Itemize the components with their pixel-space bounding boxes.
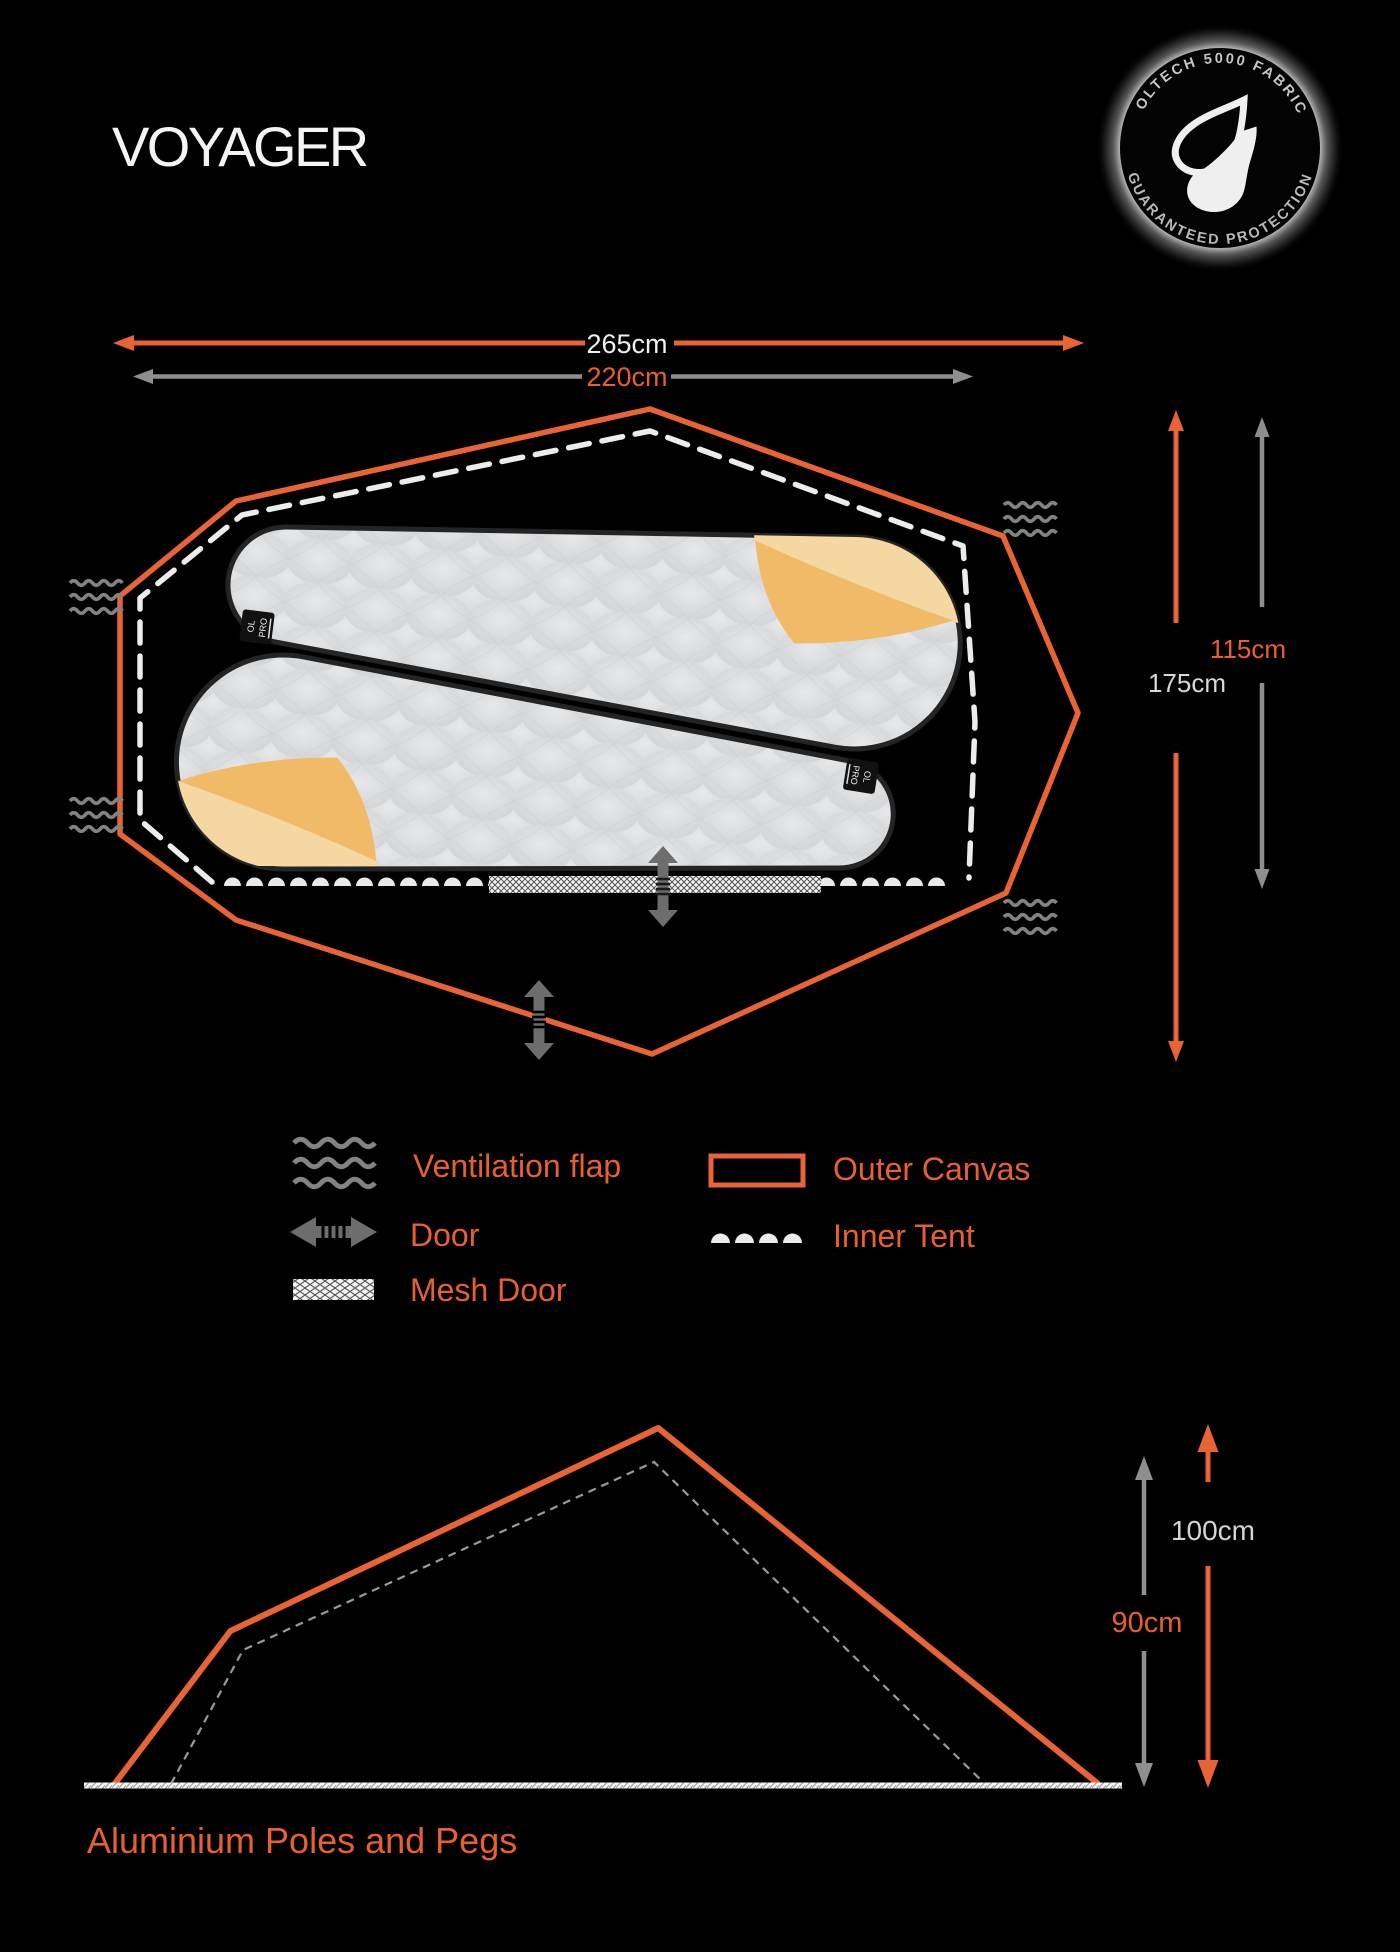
svg-text:VOYAGER: VOYAGER [112, 115, 367, 178]
svg-text:Outer Canvas: Outer Canvas [833, 1151, 1030, 1187]
svg-text:90cm: 90cm [1112, 1607, 1183, 1639]
svg-text:Inner Tent: Inner Tent [833, 1218, 975, 1254]
svg-text:Mesh Door: Mesh Door [410, 1272, 567, 1308]
svg-text:OL: OL [861, 770, 873, 783]
svg-text:Ventilation flap: Ventilation flap [413, 1148, 621, 1184]
svg-text:Aluminium Poles and Pegs: Aluminium Poles and Pegs [87, 1820, 517, 1861]
svg-text:OL: OL [245, 620, 256, 633]
svg-text:100cm: 100cm [1171, 1515, 1255, 1546]
svg-text:175cm: 175cm [1148, 668, 1226, 698]
svg-text:Door: Door [410, 1217, 480, 1253]
svg-text:115cm: 115cm [1210, 634, 1286, 664]
svg-text:220cm: 220cm [586, 362, 667, 392]
svg-text:265cm: 265cm [586, 329, 667, 359]
